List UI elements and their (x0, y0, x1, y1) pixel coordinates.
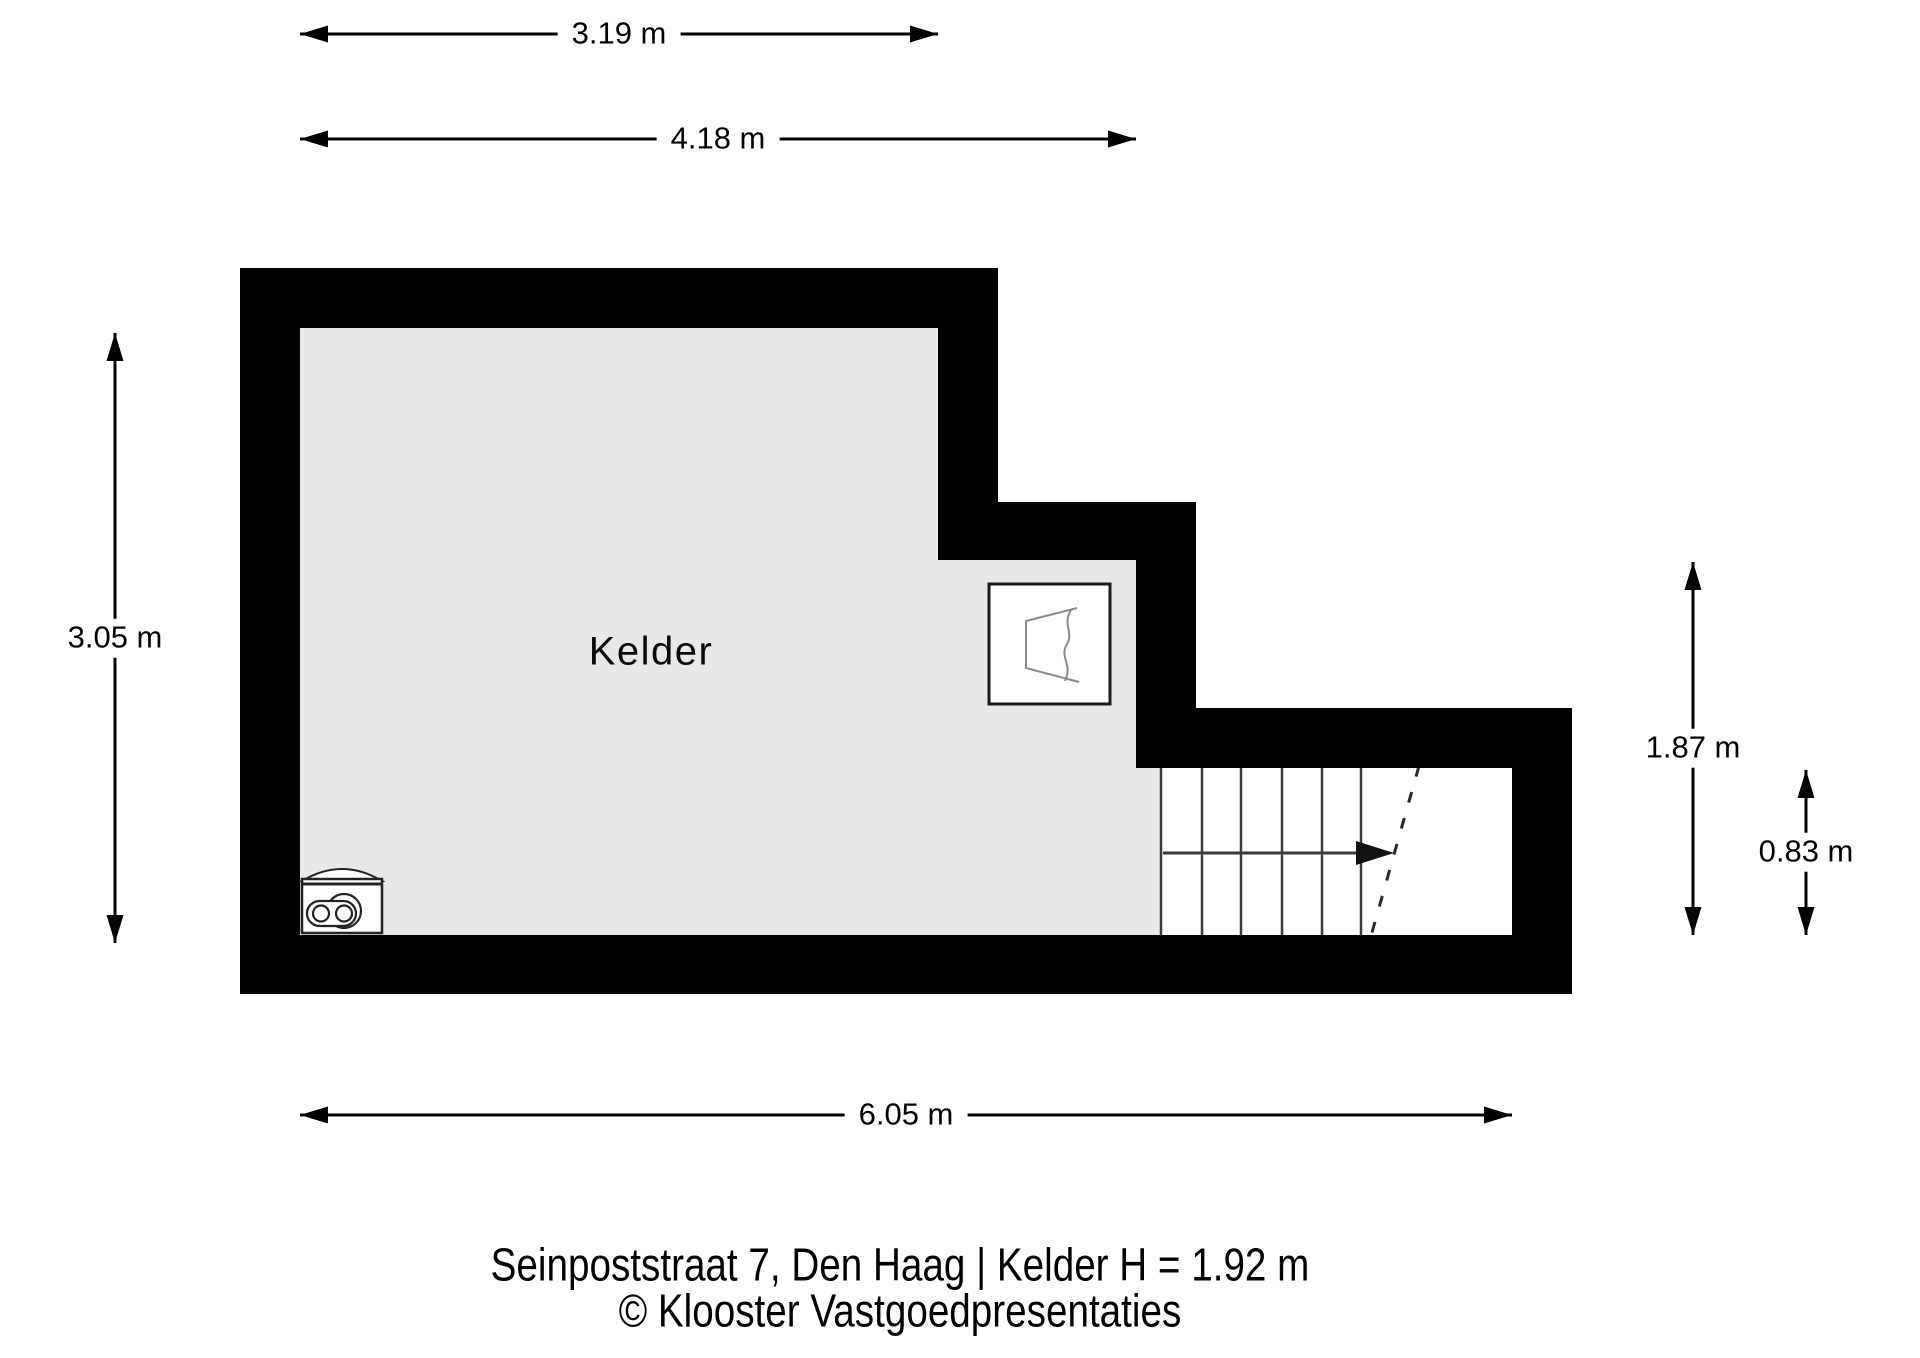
dimension-label-bottom-width: 6.05 m (845, 1096, 968, 1135)
arrowhead-left-icon (300, 26, 328, 43)
dimension-label-top-partial: 3.19 m (558, 15, 681, 54)
arrowhead-down-icon (107, 915, 124, 943)
arrowhead-up-icon (107, 333, 124, 361)
caption-credit: © Klooster Vastgoedpresentaties (619, 1286, 1182, 1337)
arrowhead-right-icon (1484, 1107, 1512, 1124)
dimension-label-top-full: 4.18 m (657, 120, 780, 159)
arrowhead-right-icon (910, 26, 938, 43)
room-label: Kelder (589, 630, 714, 675)
window-niche-symbol (989, 584, 1110, 704)
dimension-label-right-height: 1.87 m (1632, 729, 1755, 768)
arrowhead-up-icon (1685, 562, 1702, 590)
arrowhead-right-icon (1108, 131, 1136, 148)
floorplan-drawing (0, 0, 1920, 1358)
arrowhead-left-icon (300, 131, 328, 148)
arrowhead-down-icon (1798, 907, 1815, 935)
floorplan-canvas: 3.19 m 4.18 m 3.05 m 1.87 m 0.83 m 6.05 … (0, 0, 1920, 1358)
arrowhead-up-icon (1798, 770, 1815, 798)
dimension-label-left-height: 3.05 m (54, 619, 177, 658)
caption-address: Seinpoststraat 7, Den Haag | Kelder H = … (491, 1240, 1310, 1291)
arrowhead-left-icon (300, 1107, 328, 1124)
dimension-label-stairs-height: 0.83 m (1745, 833, 1868, 872)
boiler-symbol (302, 869, 382, 933)
arrowhead-down-icon (1685, 907, 1702, 935)
